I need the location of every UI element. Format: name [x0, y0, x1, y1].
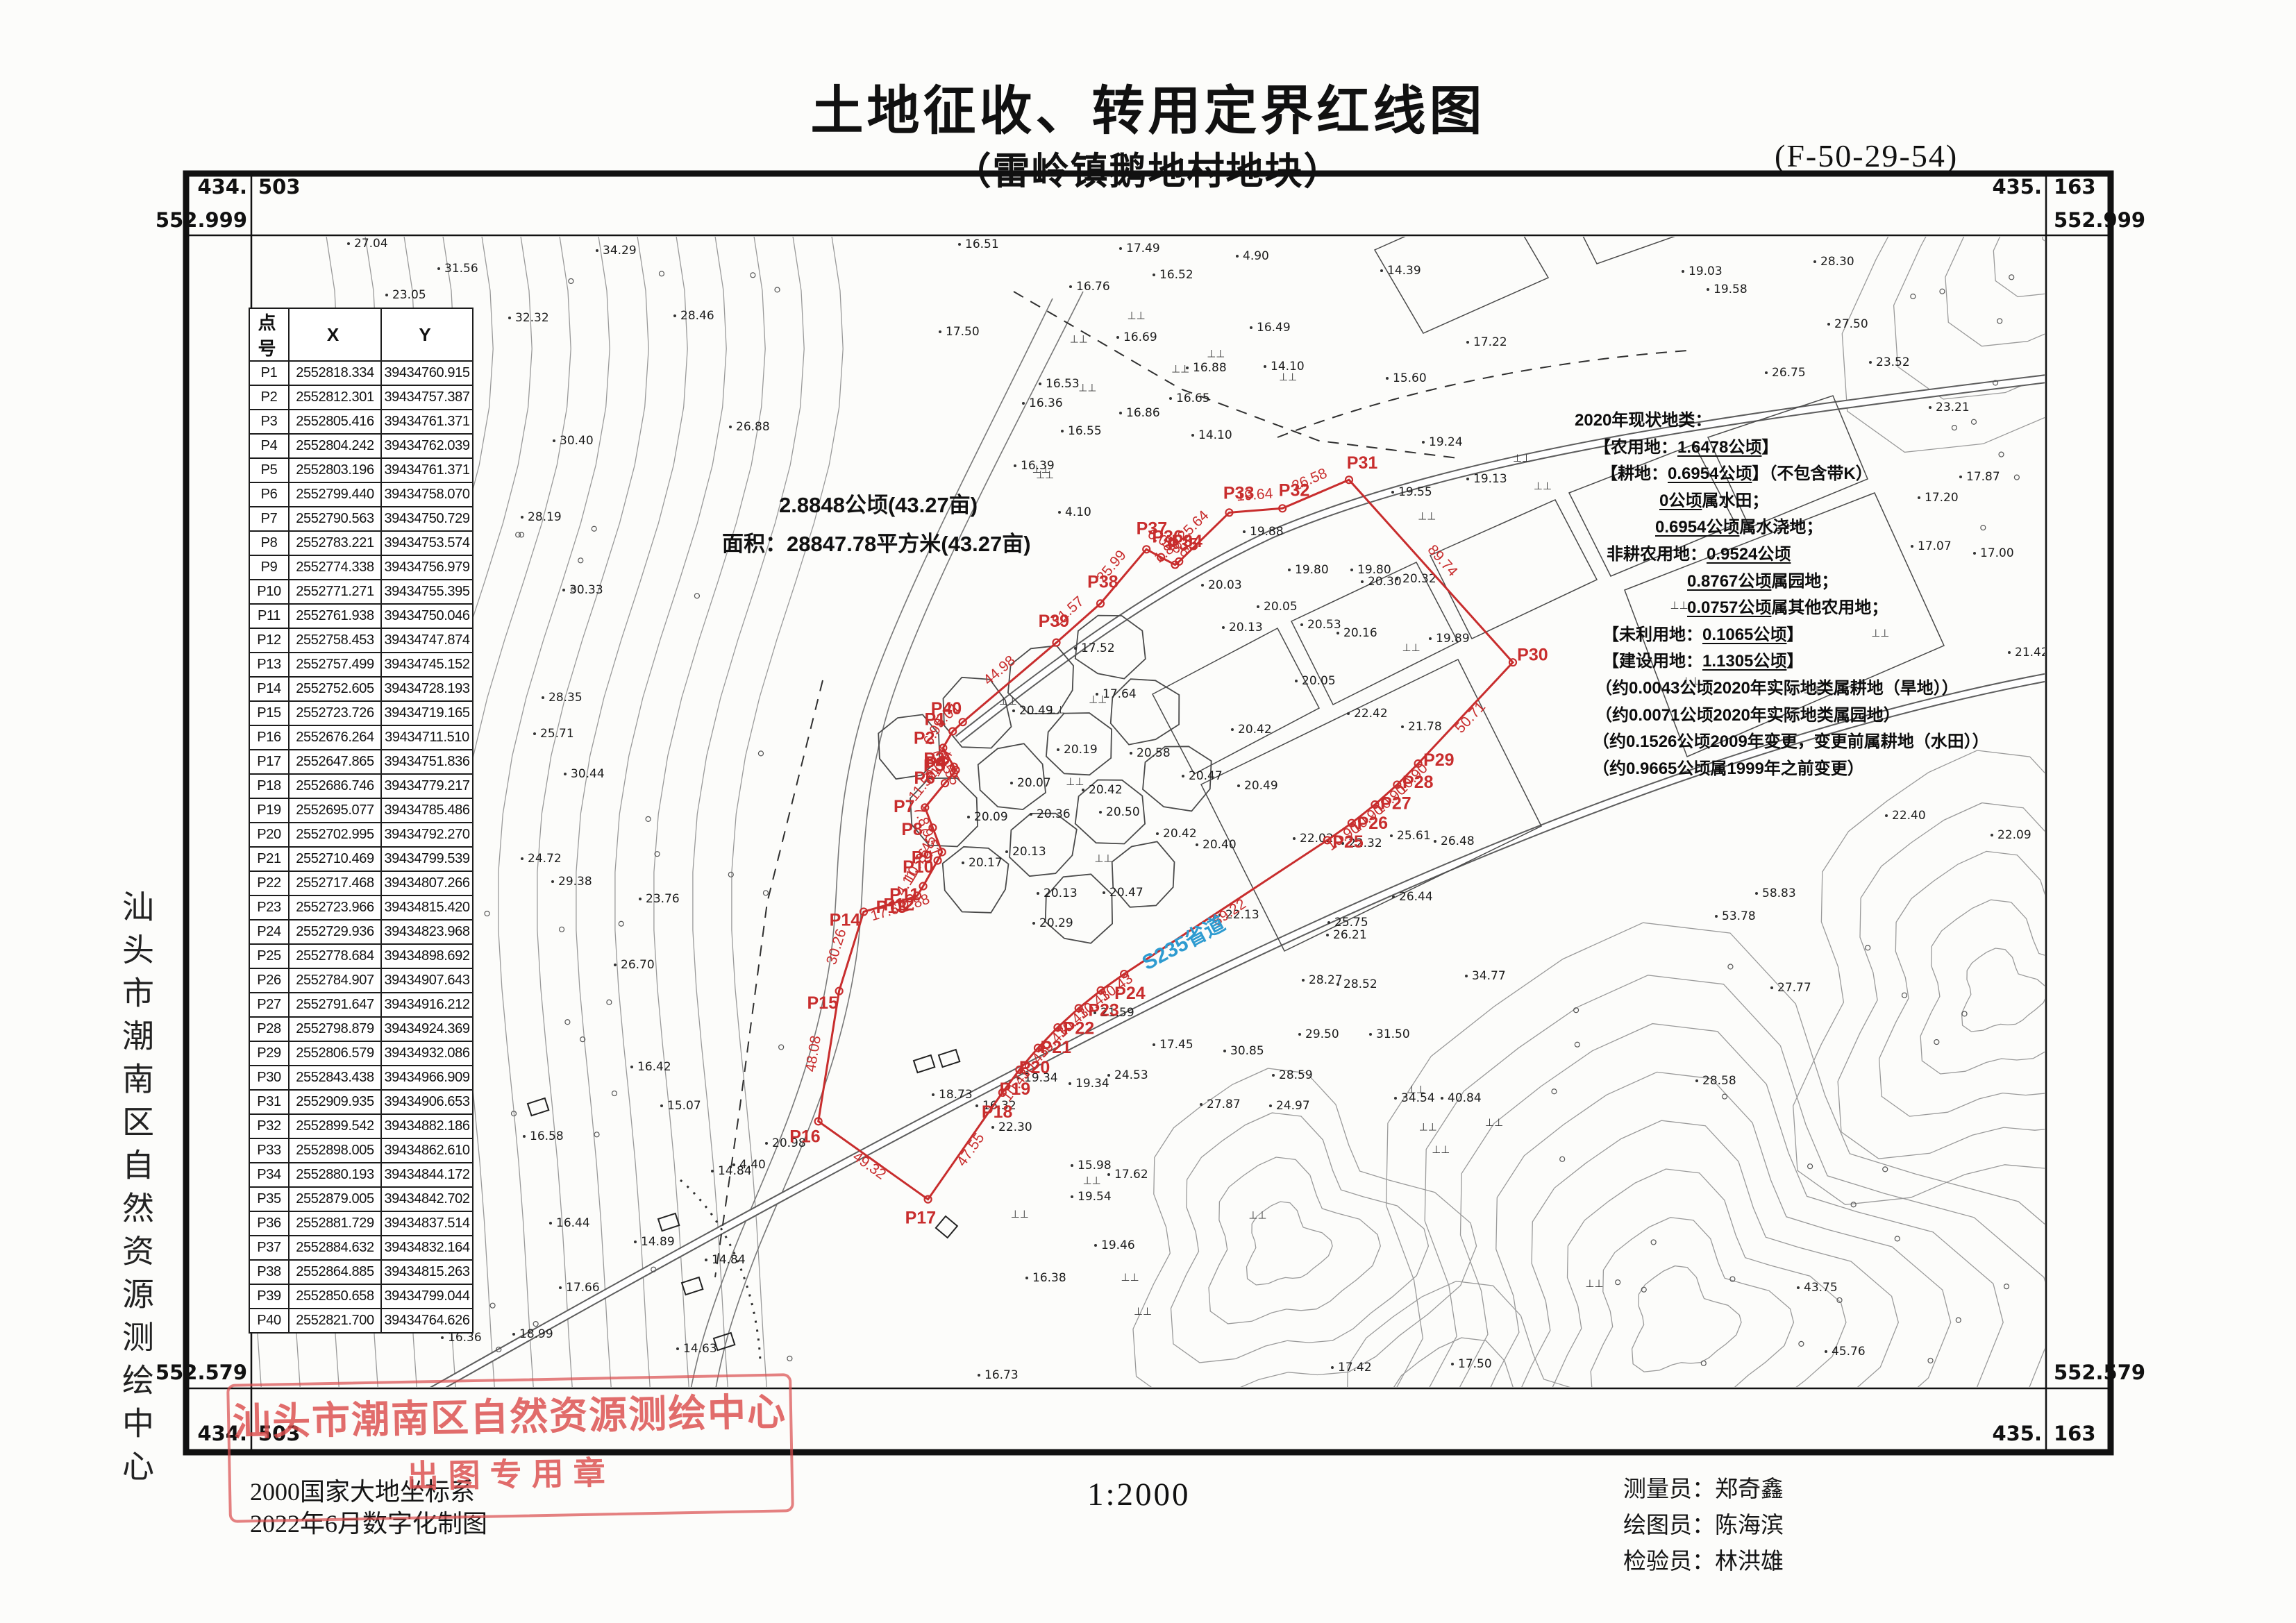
table-cell: P28 [249, 1017, 289, 1041]
spot-height-label: 20.17 [969, 856, 1003, 870]
table-cell: 2552758.453 [289, 628, 381, 653]
table-cell: 2552791.647 [289, 993, 381, 1017]
table-cell: 2552710.469 [289, 847, 381, 871]
spot-height-label: 19.80 [1295, 563, 1329, 577]
spot-height-label: 4.90 [1243, 249, 1269, 263]
spot-height-label: 20.16 [1343, 626, 1377, 640]
spot-height-label: 22.40 [1892, 809, 1926, 823]
svg-text:⊥⊥: ⊥⊥ [1248, 1210, 1266, 1222]
spot-height-label: 23.21 [1936, 401, 1970, 414]
spot-height-label: 20.53 [1307, 618, 1341, 632]
spot-height-label: 16.36 [1029, 396, 1063, 410]
table-cell: 2552783.221 [289, 531, 381, 555]
spot-height-label: 16.76 [1076, 280, 1110, 294]
table-cell: 2552729.936 [289, 920, 381, 944]
table-cell: P37 [249, 1236, 289, 1260]
spot-height-label: 16.49 [1257, 321, 1291, 335]
table-cell: P27 [249, 993, 289, 1017]
landuse-line: 【耕地：0.6954公顷】（不包含带K） [1601, 460, 1872, 484]
spot-height-label: 14.63 [683, 1342, 717, 1356]
spot-height-label: 25.75 [1334, 916, 1368, 930]
table-row: P362552881.72939434837.514 [249, 1211, 473, 1236]
vertex-label: P29 [1423, 750, 1454, 770]
spot-height-label: 16.55 [1068, 424, 1102, 438]
spot-height-label: 17.00 [1980, 546, 2014, 560]
spot-height-label: 20.19 [1064, 743, 1098, 757]
table-cell: 2552717.468 [289, 871, 381, 895]
table-cell: 39434761.371 [381, 410, 473, 434]
table-row: P32552805.41639434761.371 [249, 410, 473, 434]
table-row: P182552686.74639434779.217 [249, 774, 473, 798]
landuse-line: （约0.9665公顷属1999年之前变更） [1593, 755, 1864, 779]
spot-height-label: 28.46 [680, 309, 714, 323]
spot-height-label: 14.39 [1387, 264, 1421, 278]
spot-height-label: 17.22 [1473, 335, 1507, 349]
spot-height-label: 16.42 [637, 1060, 671, 1074]
spot-height-label: 17.87 [1966, 470, 2000, 484]
table-cell: 2552695.077 [289, 798, 381, 823]
table-cell: 39434751.836 [381, 750, 473, 774]
spot-height-label: 15.60 [1393, 371, 1427, 385]
table-cell: P7 [249, 507, 289, 531]
table-cell: 39434807.266 [381, 871, 473, 895]
table-cell: 39434785.486 [381, 798, 473, 823]
table-cell: 2552821.700 [289, 1309, 381, 1333]
spot-height-label: 29.38 [558, 875, 592, 889]
spot-height-label: 20.36 [1037, 807, 1071, 821]
table-cell: P18 [249, 774, 289, 798]
table-row: P402552821.70039434764.626 [249, 1309, 473, 1333]
table-cell: 2552899.542 [289, 1114, 381, 1138]
landuse-line: 2020年现状地类： [1575, 406, 1711, 430]
segment-distance-label: 30.26 [823, 927, 850, 966]
spot-height-label: 16.38 [1032, 1271, 1066, 1285]
spot-height-label: 27.87 [1207, 1098, 1241, 1111]
table-cell: 39434932.086 [381, 1041, 473, 1066]
spot-height-label: 23.52 [1876, 355, 1910, 369]
vertex-label: P16 [789, 1127, 820, 1146]
table-row: P322552899.54239434882.186 [249, 1114, 473, 1138]
table-cell: P19 [249, 798, 289, 823]
table-cell: 2552757.499 [289, 653, 381, 677]
table-row: P22552812.30139434757.387 [249, 385, 473, 410]
table-row: P242552729.93639434823.968 [249, 920, 473, 944]
spot-height-label: 16.85 [1779, 199, 1813, 213]
landuse-line: 0.8767公顷属园地； [1687, 567, 1838, 591]
vertex-label: P14 [830, 910, 861, 930]
svg-text:⊥⊥: ⊥⊥ [1485, 1117, 1503, 1129]
spot-height-label: 26.70 [621, 958, 655, 972]
svg-text:⊥⊥: ⊥⊥ [1207, 348, 1225, 360]
landuse-line: 0.0757公顷属其他农用地； [1687, 594, 1888, 618]
spot-height-label: 17.49 [1126, 242, 1160, 255]
vertex-label: P15 [807, 993, 839, 1013]
spot-height-label: 19.46 [1101, 1238, 1135, 1252]
landuse-line: （约0.0043公顷2020年实际地类属耕地（旱地）） [1595, 674, 1959, 698]
spot-height-label: 16.88 [1193, 361, 1227, 375]
spot-height-label: 4.40 [739, 1158, 766, 1172]
table-row: P142552752.60539434728.193 [249, 677, 473, 701]
table-row: P252552778.68439434898.692 [249, 944, 473, 968]
spot-height-label: 17.62 [1114, 1168, 1148, 1181]
spot-height-label: 32.32 [515, 311, 549, 325]
spot-height-label: 16.39 [1021, 459, 1055, 473]
spot-height-label: 15.07 [667, 1099, 701, 1113]
spot-height-label: 14.10 [1198, 428, 1232, 442]
spot-height-label: 28.58 [1702, 1074, 1736, 1088]
spot-height-label: 17.20 [1925, 491, 1959, 505]
spot-height-label: 20.58 [1137, 746, 1171, 760]
spot-height-label: 20.05 [1302, 674, 1336, 688]
table-cell: 39434906.653 [381, 1090, 473, 1114]
table-cell: P25 [249, 944, 289, 968]
table-cell: 39434924.369 [381, 1017, 473, 1041]
table-row: P62552799.44039434758.070 [249, 482, 473, 507]
spot-height-label: 20.30 [1368, 575, 1402, 589]
col-header-y: Y [381, 308, 473, 361]
table-cell: 2552784.907 [289, 968, 381, 993]
spot-height-label: 29.50 [1305, 1027, 1339, 1041]
spot-height-label: 25.61 [1397, 829, 1431, 843]
segment-distance-label: 19.64 [1236, 485, 1274, 504]
table-row: P112552761.93839434750.046 [249, 604, 473, 628]
map-sheet-page: 土地征收、转用定界红线图 （雷岭镇鹅地村地块） (F-50-29-54) 汕头市… [0, 0, 2296, 1623]
svg-text:⊥⊥: ⊥⊥ [1070, 334, 1088, 346]
spot-height-label: 19.55 [1398, 485, 1432, 499]
spot-height-label: 21.42 [2015, 646, 2049, 659]
spot-height-label: 26.75 [1772, 366, 1806, 380]
table-row: P162552676.26439434711.510 [249, 725, 473, 750]
table-cell: 39434719.165 [381, 701, 473, 725]
svg-text:⊥⊥: ⊥⊥ [1418, 511, 1436, 523]
grid-label-tr-y: 552.999 [2054, 208, 2145, 232]
spot-height-label: 17.66 [566, 1281, 600, 1295]
spot-height-label: 26.88 [736, 420, 770, 434]
table-cell: P32 [249, 1114, 289, 1138]
spot-height-label: 18.99 [519, 1327, 553, 1341]
spot-height-label: 20.42 [1089, 783, 1123, 797]
table-row: P342552880.19339434844.172 [249, 1163, 473, 1187]
spot-height-label: 20.13 [1012, 845, 1046, 859]
table-row: P192552695.07739434785.486 [249, 798, 473, 823]
svg-text:⊥⊥: ⊥⊥ [1094, 852, 1112, 864]
table-cell: 2552818.334 [289, 361, 381, 385]
spot-height-label: 17.42 [1338, 1361, 1372, 1374]
spot-height-label: 14.84 [712, 1253, 746, 1267]
table-cell: P6 [249, 482, 289, 507]
table-cell: P14 [249, 677, 289, 701]
spot-height-label: 45.76 [1832, 1345, 1866, 1359]
table-cell: 2552686.746 [289, 774, 381, 798]
map-scale: 1:2000 [1087, 1476, 1191, 1513]
table-cell: 39434750.729 [381, 507, 473, 531]
grid-label-br-x: 435. [1945, 1422, 2042, 1445]
table-cell: P20 [249, 823, 289, 847]
table-cell: P16 [249, 725, 289, 750]
spot-height-label: 18.76 [1654, 220, 1688, 234]
spot-height-label: 19.58 [1713, 283, 1748, 296]
grid-label-tr-x: 435. [1945, 175, 2042, 199]
spot-height-label: 31.56 [444, 262, 478, 276]
surveyor-name: 测量员：郑奇鑫 [1623, 1470, 1784, 1504]
spot-height-label: 16.81 [1813, 192, 1847, 206]
spot-height-label: 16.51 [965, 237, 999, 251]
table-cell: 2552880.193 [289, 1163, 381, 1187]
red-area-annotation-2: 面积：28847.78平方米(43.27亩) [722, 526, 1031, 557]
svg-text:⊥⊥: ⊥⊥ [1585, 1278, 1603, 1290]
table-cell: 2552647.865 [289, 750, 381, 774]
spot-height-label: 20.47 [1109, 886, 1143, 900]
segment-distance-label: 48.08 [803, 1034, 824, 1073]
landuse-line: （约0.1526公顷2009年变更，变更前属耕地（水田）） [1593, 728, 1989, 752]
table-cell: 39434907.643 [381, 968, 473, 993]
table-row: P292552806.57939434932.086 [249, 1041, 473, 1066]
outer-border [186, 174, 2111, 1452]
vertex-label: P18 [982, 1102, 1013, 1122]
vertex-label: P17 [905, 1209, 936, 1228]
table-cell: P2 [249, 385, 289, 410]
spot-height-label: 16.86 [1126, 406, 1160, 420]
table-cell: P12 [249, 628, 289, 653]
spot-height-label: 27.04 [354, 237, 388, 251]
table-row: P382552864.88539434815.263 [249, 1260, 473, 1284]
coordinate-table-header: 点 号 X Y [249, 308, 473, 361]
spot-height-label: 28.35 [548, 691, 583, 705]
segment-distance-label: 47.55 [954, 1130, 988, 1169]
spot-height-label: 17.64 [1103, 687, 1137, 701]
table-cell: P33 [249, 1138, 289, 1163]
spot-height-label: 58.83 [1762, 886, 1796, 900]
spot-height-label: 19.88 [1250, 525, 1284, 539]
table-cell: 39434916.212 [381, 993, 473, 1017]
table-cell: 2552864.885 [289, 1260, 381, 1284]
table-cell: 2552702.995 [289, 823, 381, 847]
spot-height-label: 28.30 [1820, 255, 1854, 269]
table-cell: P22 [249, 871, 289, 895]
spot-height-label: 16.58 [530, 1129, 564, 1143]
spot-height-label: 16.44 [556, 1216, 590, 1230]
table-cell: 2552774.338 [289, 555, 381, 580]
table-cell: 39434761.371 [381, 458, 473, 482]
table-cell: 2552771.271 [289, 580, 381, 604]
stream [690, 292, 1083, 1393]
landuse-line: 【建设用地：1.1305公顷】 [1602, 647, 1803, 671]
spot-height-label: 17.50 [946, 325, 980, 339]
landuse-line: （约0.0071公顷2020年实际地类属园地） [1595, 701, 1900, 725]
table-cell: 2552806.579 [289, 1041, 381, 1066]
svg-text:⊥⊥: ⊥⊥ [1083, 1175, 1101, 1186]
spot-height-label: 23.76 [646, 892, 680, 906]
spot-height-label: 24.72 [528, 852, 562, 866]
spot-height-label: 18.73 [939, 1088, 973, 1102]
spot-height-label: 20.05 [1264, 600, 1298, 614]
spot-height-label: 30.85 [1230, 1044, 1264, 1058]
landuse-line: 【未利用地：0.1065公顷】 [1602, 621, 1803, 645]
spot-height-label: 16.69 [1123, 330, 1157, 344]
svg-text:⊥⊥: ⊥⊥ [1128, 310, 1146, 322]
spot-height-label: 20.09 [974, 810, 1008, 824]
col-header-x: X [289, 308, 381, 361]
table-cell: 39434799.044 [381, 1284, 473, 1309]
spot-height-label: 28.19 [528, 510, 562, 524]
svg-text:⊥⊥: ⊥⊥ [1670, 600, 1689, 612]
landuse-line: 【农用地：1.6478公顷】 [1594, 433, 1778, 457]
table-cell: 2552804.242 [289, 434, 381, 458]
table-row: P392552850.65839434799.044 [249, 1284, 473, 1309]
stamp-purpose: 出图专用章 [231, 1444, 791, 1500]
spot-height-label: 34.54 [1401, 1091, 1435, 1105]
table-cell: 39434882.186 [381, 1114, 473, 1138]
spot-height-label: 22.42 [1354, 707, 1388, 721]
grid-label-tl-y: 552.999 [150, 208, 247, 232]
table-cell: 2552812.301 [289, 385, 381, 410]
svg-text:⊥⊥: ⊥⊥ [1419, 1121, 1437, 1133]
table-cell: 39434898.692 [381, 944, 473, 968]
table-cell: P10 [249, 580, 289, 604]
vertex-label: P31 [1347, 453, 1378, 473]
table-cell: P38 [249, 1260, 289, 1284]
spot-height-label: 31.50 [1376, 1027, 1410, 1041]
table-cell: P36 [249, 1211, 289, 1236]
table-row: P352552879.00539434842.702 [249, 1187, 473, 1211]
table-cell: 39434758.070 [381, 482, 473, 507]
spot-height-label: 20.49 [1244, 779, 1278, 793]
spot-height-label: 16.76 [1841, 220, 1875, 234]
table-cell: 39434842.702 [381, 1187, 473, 1211]
table-row: P212552710.46939434799.539 [249, 847, 473, 871]
spot-height-label: 43.75 [1804, 1281, 1838, 1295]
table-cell: P3 [249, 410, 289, 434]
svg-text:⊥⊥: ⊥⊥ [1513, 453, 1531, 464]
spot-height-label: 28.59 [1279, 1068, 1313, 1082]
spot-height-label: 28.52 [1343, 977, 1377, 991]
table-row: P202552702.99539434792.270 [249, 823, 473, 847]
table-cell: 39434750.046 [381, 604, 473, 628]
spot-height-label: 15.98 [1078, 1159, 1112, 1172]
table-row: P122552758.45339434747.874 [249, 628, 473, 653]
stamp-org-name: 汕头市潮南区自然资源测绘中心 [229, 1380, 789, 1446]
table-cell: P34 [249, 1163, 289, 1187]
table-cell: 39434844.172 [381, 1163, 473, 1187]
table-cell: 39434755.395 [381, 580, 473, 604]
spot-height-label: 40.84 [1448, 1091, 1482, 1105]
table-cell: P39 [249, 1284, 289, 1309]
vertex-label: P30 [1517, 646, 1548, 665]
table-row: P92552774.33839434756.979 [249, 555, 473, 580]
spot-height-label: 16.53 [1046, 377, 1080, 391]
svg-text:⊥⊥: ⊥⊥ [1066, 776, 1084, 788]
spot-height-label: 20.07 [1017, 776, 1051, 790]
table-cell: P30 [249, 1066, 289, 1090]
table-cell: 2552761.938 [289, 604, 381, 628]
table-cell: 2552843.438 [289, 1066, 381, 1090]
spot-height-label: 27.50 [1834, 317, 1868, 331]
spot-height-label: 16.52 [1159, 268, 1193, 282]
table-cell: P15 [249, 701, 289, 725]
table-row: P232552723.96639434815.420 [249, 895, 473, 920]
spot-height-label: 19.03 [1689, 264, 1723, 278]
table-cell: 2552778.684 [289, 944, 381, 968]
table-row: P372552884.63239434832.164 [249, 1236, 473, 1260]
landuse-line: 0公顷属水田； [1659, 487, 1768, 511]
spot-height-label: 19.13 [1473, 472, 1507, 486]
red-area-annotation-1: 2.8848公顷(43.27亩) [779, 487, 978, 519]
table-row: P282552798.87939434924.369 [249, 1017, 473, 1041]
checker-name: 检验员：林洪雄 [1623, 1542, 1784, 1576]
table-cell: P13 [249, 653, 289, 677]
table-cell: 2552881.729 [289, 1211, 381, 1236]
table-row: P332552898.00539434862.610 [249, 1138, 473, 1163]
spot-height-label: 20.42 [1238, 723, 1272, 737]
table-cell: 2552879.005 [289, 1187, 381, 1211]
spot-height-label: 26.44 [1399, 890, 1433, 904]
agency-seal-stamp: 汕头市潮南区自然资源测绘中心 出图专用章 [226, 1373, 794, 1523]
spot-height-label: 4.10 [1065, 505, 1091, 519]
spot-height-label: 16.65 [1176, 392, 1210, 405]
spot-height-label: 20.40 [1203, 838, 1237, 852]
table-cell: P9 [249, 555, 289, 580]
table-cell: P1 [249, 361, 289, 385]
spot-height-label: 30.33 [569, 583, 603, 597]
spot-height-label: 19.24 [1429, 435, 1463, 449]
grid-label-br-y: 552.579 [2054, 1361, 2145, 1384]
table-row: P82552783.22139434753.574 [249, 531, 473, 555]
spot-height-label: 53.78 [1722, 909, 1756, 923]
table-cell: 39434747.874 [381, 628, 473, 653]
grid-label-br-x2: 163 [2054, 1422, 2096, 1445]
svg-text:⊥⊥: ⊥⊥ [1432, 1144, 1450, 1156]
grid-label-tl-x2: 503 [258, 175, 301, 199]
spot-height-label: 34.77 [1472, 969, 1506, 983]
table-cell: P21 [249, 847, 289, 871]
spot-height-label: 24.97 [1276, 1099, 1310, 1113]
spot-height-label: 25.71 [540, 727, 574, 741]
table-cell: 2552884.632 [289, 1236, 381, 1260]
grid-label-tl-x: 434. [150, 175, 247, 199]
spot-height-label: 23.05 [392, 288, 426, 302]
spot-height-label: 17.52 [1081, 641, 1115, 655]
table-row: P42552804.24239434762.039 [249, 434, 473, 458]
spot-height-label: 26.21 [1333, 928, 1367, 942]
table-row: P52552803.19639434761.371 [249, 458, 473, 482]
table-cell: 39434966.909 [381, 1066, 473, 1090]
table-cell: 2552803.196 [289, 458, 381, 482]
spot-height-label: 14.89 [641, 1235, 675, 1249]
coordinate-table: 点 号 X Y P12552818.33439434760.915P225528… [249, 308, 474, 1334]
spot-height-label: 14.10 [1271, 360, 1305, 373]
table-cell: 39434753.574 [381, 531, 473, 555]
table-cell: P24 [249, 920, 289, 944]
table-cell: 2552805.416 [289, 410, 381, 434]
spot-height-label: 21.78 [1408, 720, 1442, 734]
table-row: P172552647.86539434751.836 [249, 750, 473, 774]
table-cell: 39434792.270 [381, 823, 473, 847]
spot-height-label: 20.50 [1106, 805, 1140, 819]
table-cell: P31 [249, 1090, 289, 1114]
spot-height-label: 19.34 [1075, 1077, 1109, 1091]
table-cell: P5 [249, 458, 289, 482]
spot-height-label: 16.70 [1702, 151, 1736, 165]
svg-text:⊥⊥: ⊥⊥ [1871, 628, 1889, 639]
table-cell: 2552752.605 [289, 677, 381, 701]
grid-label-tr-x2: 163 [2054, 175, 2096, 199]
table-cell: 39434815.420 [381, 895, 473, 920]
svg-text:⊥⊥: ⊥⊥ [1171, 364, 1189, 376]
spot-height-label: 30.40 [560, 434, 594, 448]
spot-height-label: 20.32 [1402, 572, 1436, 586]
col-header-point: 点 号 [249, 308, 289, 361]
svg-text:⊥⊥: ⊥⊥ [1078, 382, 1096, 394]
